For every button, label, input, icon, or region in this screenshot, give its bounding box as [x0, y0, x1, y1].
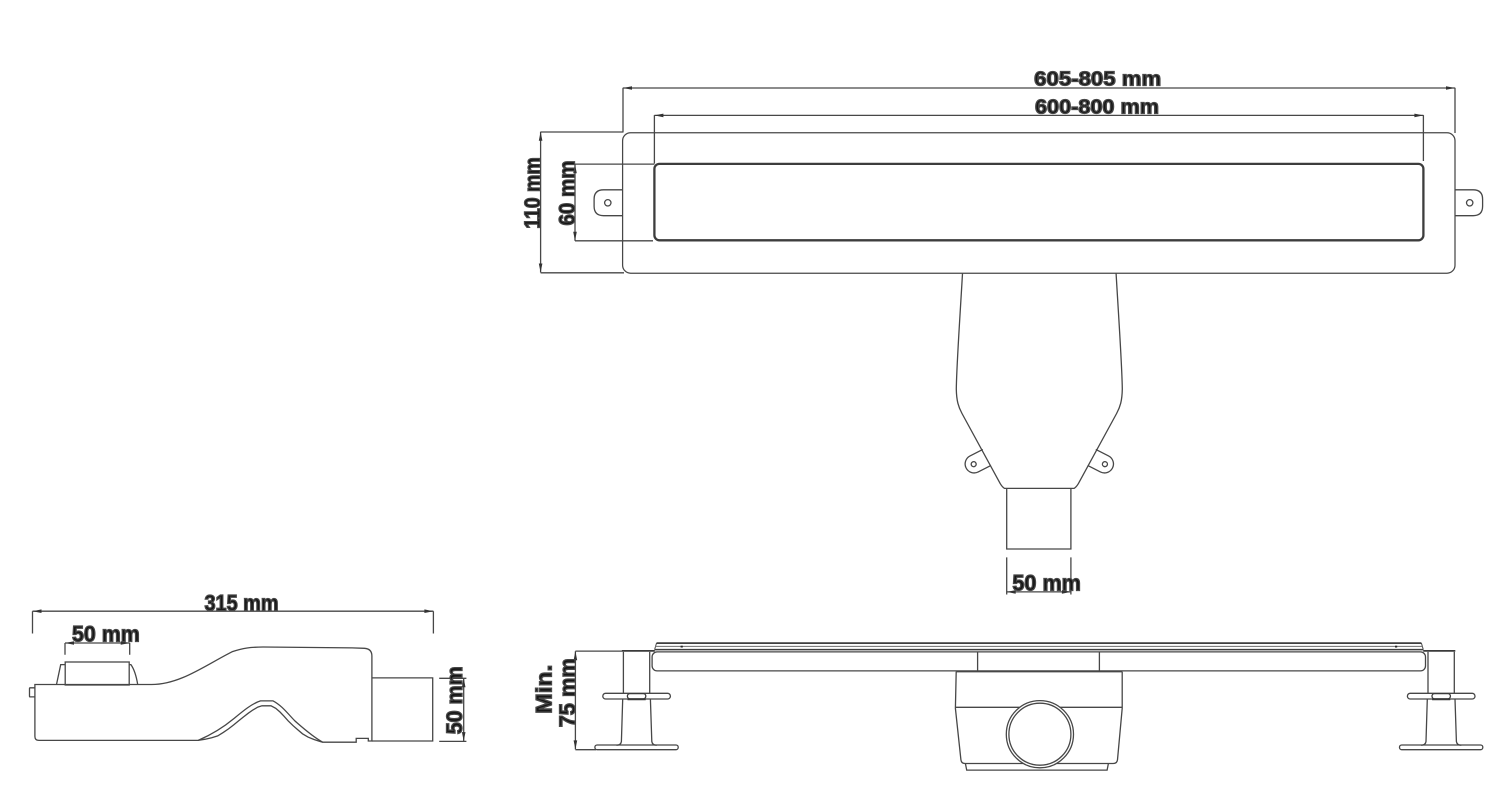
svg-text:50 mm: 50 mm [72, 622, 140, 647]
svg-text:60 mm: 60 mm [555, 161, 580, 226]
svg-text:600-800 mm: 600-800 mm [1035, 96, 1159, 118]
svg-text:110 mm: 110 mm [520, 157, 545, 229]
svg-text:50 mm: 50 mm [1012, 571, 1081, 596]
svg-text:75 mm: 75 mm [555, 658, 580, 727]
svg-text:605-805 mm: 605-805 mm [1034, 68, 1161, 90]
svg-text:315 mm: 315 mm [205, 590, 279, 615]
svg-text:Min.: Min. [531, 665, 556, 714]
svg-text:50 mm: 50 mm [442, 666, 467, 734]
